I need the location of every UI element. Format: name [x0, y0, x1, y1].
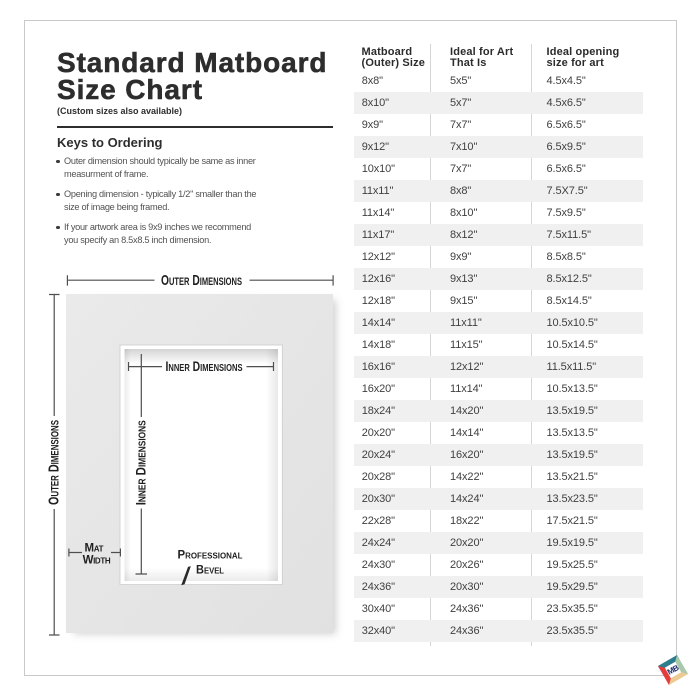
svg-text:Outer Dimensions: Outer Dimensions	[46, 420, 63, 505]
svg-text:Inner Dimensions: Inner Dimensions	[166, 359, 243, 374]
svg-text:Bevel: Bevel	[196, 565, 224, 577]
svg-text:Professional: Professional	[178, 550, 243, 562]
svg-text:Outer Dimensions: Outer Dimensions	[161, 272, 242, 289]
svg-text:Inner Dimensions: Inner Dimensions	[134, 420, 149, 505]
svg-text:Width: Width	[83, 555, 111, 567]
svg-text:Mat: Mat	[85, 543, 104, 555]
